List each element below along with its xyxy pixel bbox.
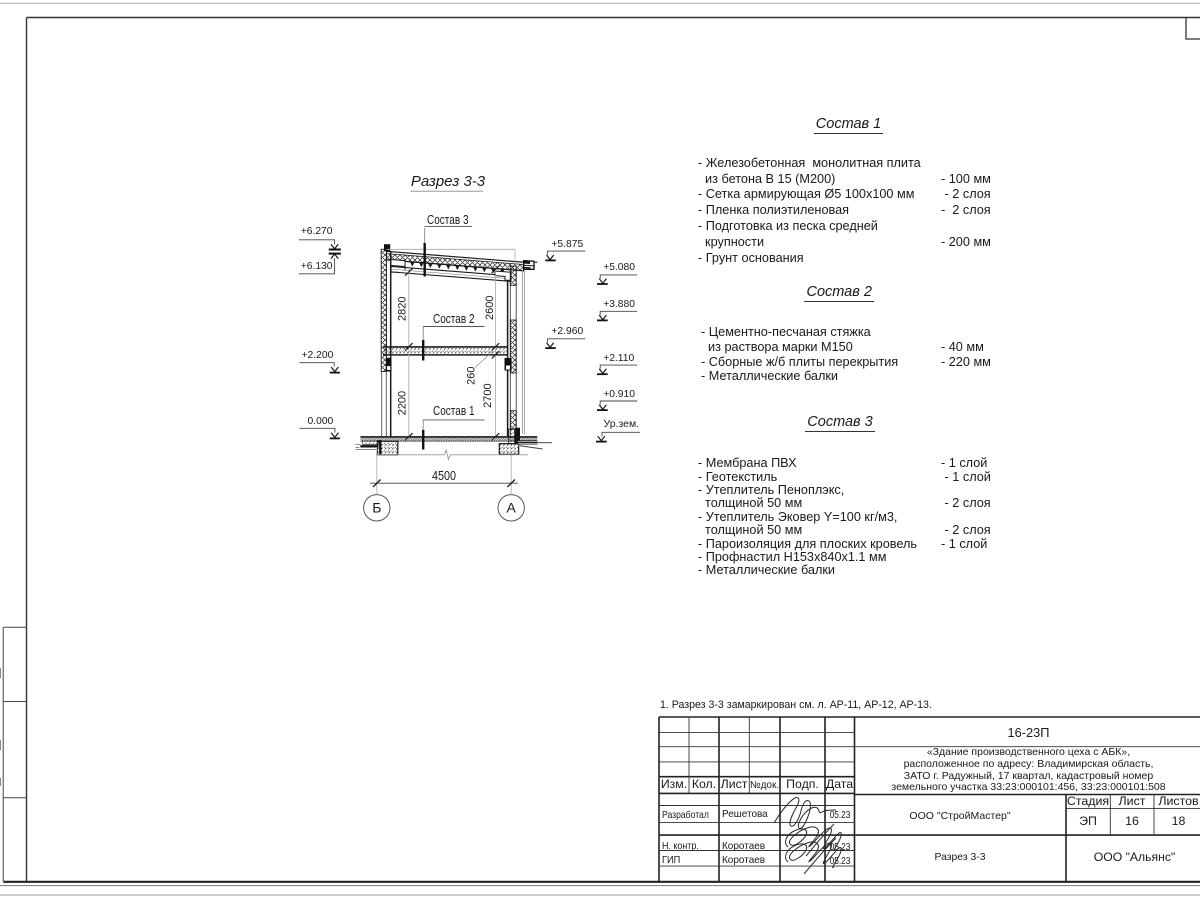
svg-text:2820: 2820 xyxy=(396,297,408,321)
svg-text:2700: 2700 xyxy=(482,383,494,407)
svg-text:Б: Б xyxy=(372,500,381,516)
svg-text:2200: 2200 xyxy=(397,391,409,415)
svg-text:А: А xyxy=(507,500,517,516)
svg-text:4500: 4500 xyxy=(432,468,456,483)
svg-text:2600: 2600 xyxy=(484,296,496,320)
svg-text:260: 260 xyxy=(465,367,477,385)
